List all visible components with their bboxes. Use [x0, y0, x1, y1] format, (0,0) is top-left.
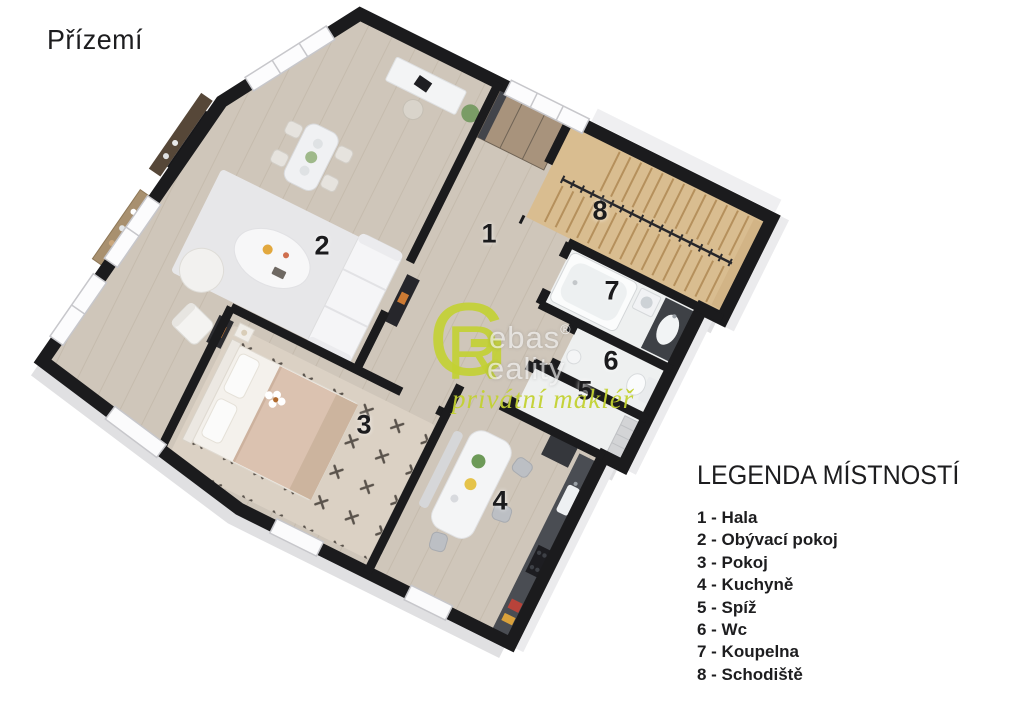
room-number-6: 6 — [603, 346, 618, 377]
room-number-8: 8 — [592, 196, 607, 227]
legend-item: 3 - Pokoj — [697, 552, 987, 574]
room-number-7: 7 — [604, 276, 619, 307]
legend-item: 6 - Wc — [697, 619, 987, 641]
room-number-3: 3 — [356, 410, 371, 441]
legend-item: 4 - Kuchyně — [697, 574, 987, 596]
legend-item: 8 - Schodiště — [697, 664, 987, 686]
room-number-2: 2 — [314, 231, 329, 262]
legend-heading: LEGENDA MÍSTNOSTÍ — [697, 460, 967, 491]
legend-item: 1 - Hala — [697, 507, 987, 529]
floor-plan-page: Přízemí — [0, 0, 1024, 724]
legend-item: 7 - Koupelna — [697, 641, 987, 663]
legend: LEGENDA MÍSTNOSTÍ 1 - Hala 2 - Obývací p… — [697, 460, 987, 686]
room-number-1: 1 — [481, 219, 496, 250]
room-number-5: 5 — [577, 376, 592, 407]
room-number-4: 4 — [492, 486, 507, 517]
legend-item: 5 - Spíž — [697, 597, 987, 619]
legend-item: 2 - Obývací pokoj — [697, 529, 987, 551]
